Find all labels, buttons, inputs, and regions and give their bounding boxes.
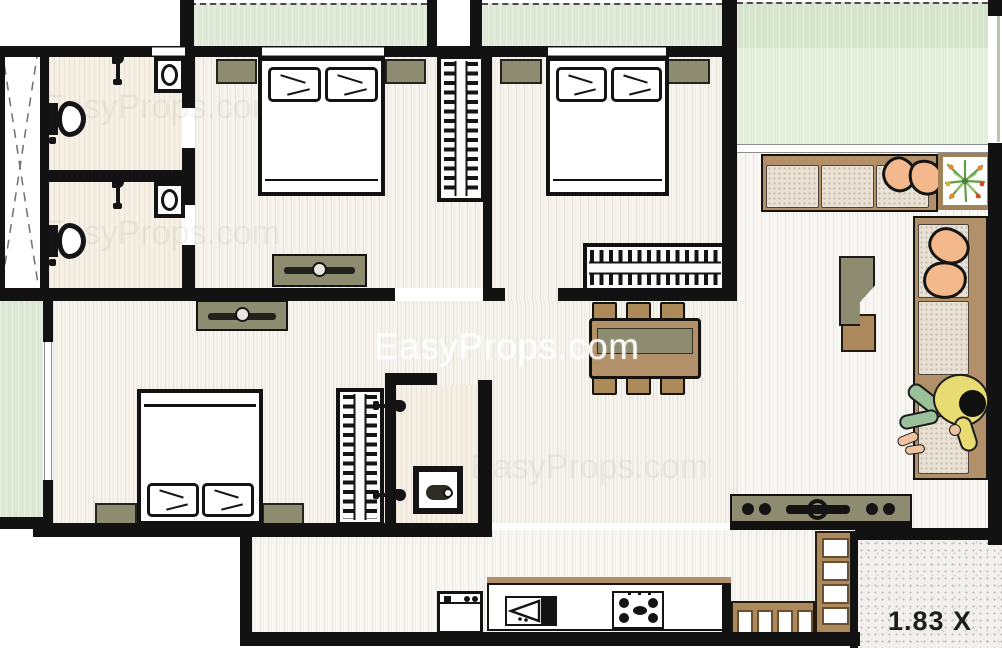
window-living-sliding [737,144,988,153]
toilet-bowl [57,223,86,259]
burner-center [633,606,647,615]
dining-chair [592,377,617,395]
speaker-dot [742,503,754,515]
shower-icon [112,52,128,86]
wall-segment [988,0,1002,16]
speaker-dot [759,503,771,515]
double-bed-bedroom2 [546,57,669,196]
nightstand [216,59,257,84]
nightstand [500,59,542,84]
cabinet-drawer [822,561,849,581]
balcony-left [0,292,43,517]
shoe-cabinet-vertical [815,531,855,643]
fridge-icon [437,591,483,634]
knob [638,592,641,595]
terrace-right-edge [997,14,1000,142]
fridge-dial [472,596,478,602]
wall-segment [182,148,195,205]
window [262,47,384,56]
toilet-icon [49,100,89,144]
washbasin-icon [154,57,185,93]
watermark-faint: EasyProps.com [470,448,708,487]
terrace-upper [737,2,988,48]
burner [619,598,629,608]
dresser-knob [235,307,250,322]
wall-segment [558,288,737,301]
person-foot [904,444,925,456]
cabinet-drawer [822,584,849,604]
balcony-strip-bedroom2 [482,3,722,47]
basin-drain [443,488,453,498]
scale-label: 1.83 X [858,606,1002,637]
wall-segment [478,380,492,523]
window [44,342,52,480]
toilet-flush [49,137,56,144]
wall-segment [40,170,182,182]
window [548,47,666,56]
dining-chair [626,377,651,395]
wall-segment [483,55,492,301]
wall-segment [33,523,492,537]
wall-segment [385,373,437,385]
pillow [556,67,607,102]
fridge-dial [464,596,470,602]
burner [619,613,629,623]
duct-cross-icon [0,46,40,288]
double-bed-bedroom3 [137,389,263,525]
double-bed-bedroom1 [258,57,385,196]
person-hand [949,424,961,436]
nightstand [667,59,710,84]
wall-segment [0,288,395,301]
shower-base [373,490,379,499]
toilet-flush [49,259,56,266]
burner [648,598,658,608]
dresser-bedroom1 [272,254,367,287]
knob [628,592,631,595]
burner [648,613,658,623]
wall-segment [722,0,737,301]
pillow [147,483,199,517]
sofa-cushion [821,165,874,208]
floor-plan: EasyProps.com EasyProps.com EasyProps.co… [0,0,1002,648]
knob [648,592,651,595]
wall-segment [180,0,194,46]
blanket-line [553,179,662,182]
window [152,47,185,56]
stove-icon [612,591,664,629]
wall-segment [855,528,1002,540]
shower-base [113,79,122,85]
wall-segment [722,583,731,646]
planter-box [938,152,992,210]
cabinet-drawer [822,607,849,625]
wall-segment [470,0,482,46]
dining-chair [660,377,685,395]
shower-base [373,401,379,410]
shower-base [113,203,122,209]
cabinet-drawer [822,538,849,558]
kitchen-sink-icon [505,596,557,626]
wardrobe-bedroom1 [437,55,485,202]
wall-segment [0,46,5,288]
wall-segment [43,292,53,342]
sofa-cushion [918,301,969,375]
toilet-bowl [57,101,86,137]
person-head [959,390,986,417]
wall-segment [483,288,505,301]
person-leg [898,408,940,431]
balcony-strip-bedroom1 [190,3,427,47]
speaker-dot [866,503,878,515]
washbasin-icon [413,466,463,514]
fridge-switch [444,596,451,602]
dresser-bedroom3 [196,300,288,331]
toilet-icon [49,222,89,266]
watermark: EasyProps.com [374,326,640,368]
wall-segment [247,632,860,646]
sink-basin-triangle [508,599,542,623]
pillow [325,67,378,102]
blanket-line [144,404,256,407]
wall-segment [240,530,252,646]
wall-segment [427,0,437,46]
pillow [268,67,321,102]
wardrobe-bedroom2 [583,243,727,292]
dresser-knob [312,262,327,277]
wall-segment [385,385,396,523]
washbasin-icon [154,182,185,218]
sink-drain-board [541,598,555,624]
sofa-cushion [766,165,819,208]
speaker-dot [883,503,895,515]
wall-segment [988,143,1002,545]
person-figure [897,368,992,464]
plant-icon [944,158,986,204]
tv-center-ring [807,499,828,520]
pillow [202,483,254,517]
pillow [611,67,662,102]
wall-segment [850,533,858,648]
blanket-line [265,179,378,182]
nightstand [385,59,426,84]
terrace-lower [737,48,988,144]
